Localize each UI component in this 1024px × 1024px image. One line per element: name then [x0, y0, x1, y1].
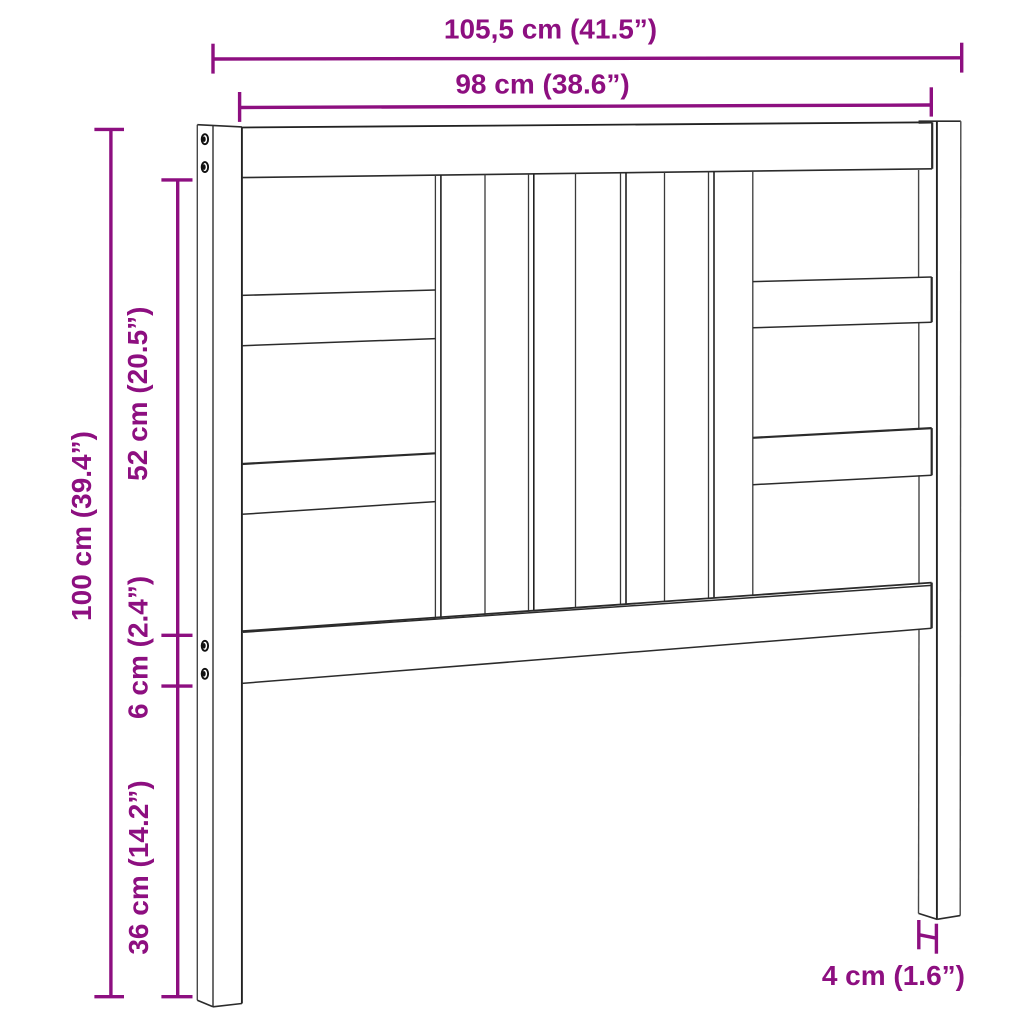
svg-text:98 cm (38.6”): 98 cm (38.6”) [455, 69, 629, 100]
svg-text:36 cm (14.2”): 36 cm (14.2”) [123, 780, 154, 954]
svg-text:105,5 cm (41.5”): 105,5 cm (41.5”) [444, 14, 657, 45]
svg-text:52 cm (20.5”): 52 cm (20.5”) [122, 307, 153, 481]
svg-text:4 cm (1.6”): 4 cm (1.6”) [822, 960, 965, 991]
svg-text:100 cm (39.4”): 100 cm (39.4”) [66, 431, 97, 621]
svg-text:6 cm (2.4”): 6 cm (2.4”) [122, 576, 153, 719]
